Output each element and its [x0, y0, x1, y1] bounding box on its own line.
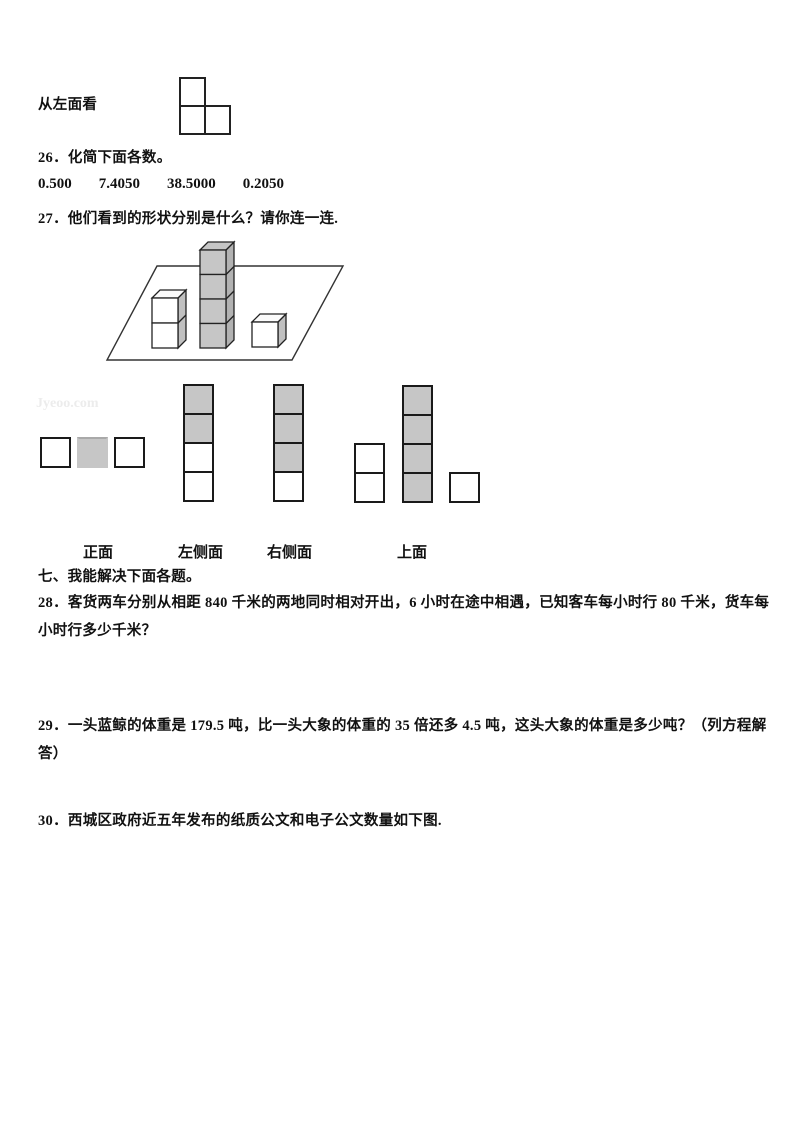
l-shape-figure — [176, 75, 236, 137]
top-view-column-2 — [402, 385, 433, 503]
stack-four-cubes — [200, 242, 234, 348]
question-29-text: 29．一头蓝鲸的体重是 179.5 吨，比一头大象的体重的 35 倍还多 4.5… — [38, 712, 783, 768]
view-cell-white — [354, 472, 385, 503]
view-cell-gray — [273, 384, 304, 415]
view-cell-gray — [273, 413, 304, 444]
from-left-view-label: 从左面看 — [38, 93, 97, 114]
watermark: Jyeoo.com — [36, 396, 99, 412]
q26-value: 0.500 — [38, 176, 72, 193]
view-cell-white — [183, 471, 214, 502]
q26-value: 0.2050 — [243, 176, 284, 193]
view-cell-gray — [402, 385, 433, 416]
question-26-values: 0.500 7.4050 38.5000 0.2050 — [38, 176, 284, 193]
left-side-view-label: 左侧面 — [178, 541, 223, 562]
right-side-view-figure — [273, 384, 304, 502]
view-cell-gray — [273, 442, 304, 473]
exam-page: 从左面看 26．化简下面各数。 0.500 7.4050 38.5000 0.2… — [0, 0, 794, 1123]
view-cell-gray — [402, 414, 433, 445]
cube-scene-figure — [100, 238, 360, 366]
view-cell-white — [114, 437, 145, 468]
question-26-text: 26．化简下面各数。 — [38, 146, 172, 167]
view-cell-white — [449, 472, 480, 503]
view-cell-gray — [77, 437, 108, 468]
view-cell-white — [40, 437, 71, 468]
q26-value: 38.5000 — [167, 176, 216, 193]
view-cell-white — [273, 471, 304, 502]
question-28-text: 28．客货两车分别从相距 840 千米的两地同时相对开出，6 小时在途中相遇，已… — [38, 589, 771, 645]
right-side-view-label: 右侧面 — [267, 541, 312, 562]
single-cube — [252, 314, 286, 347]
left-side-view-figure — [183, 384, 214, 502]
question-30-text: 30．西城区政府近五年发布的纸质公文和电子公文数量如下图. — [38, 807, 783, 835]
view-cell-gray — [402, 472, 433, 503]
view-cell-gray — [183, 413, 214, 444]
top-view-column-3 — [449, 472, 480, 503]
stack-two-cubes — [152, 290, 186, 348]
section-7-title: 七、我能解决下面各题。 — [38, 565, 201, 586]
view-cell-gray — [183, 384, 214, 415]
front-view-figure — [40, 437, 145, 468]
top-view-column-1 — [354, 443, 385, 503]
question-27-text: 27．他们看到的形状分别是什么？请你连一连. — [38, 207, 338, 228]
front-view-label: 正面 — [83, 541, 113, 562]
view-cell-white — [183, 442, 214, 473]
view-cell-gray — [402, 443, 433, 474]
q26-value: 7.4050 — [99, 176, 140, 193]
top-view-label: 上面 — [397, 541, 427, 562]
view-cell-white — [354, 443, 385, 474]
